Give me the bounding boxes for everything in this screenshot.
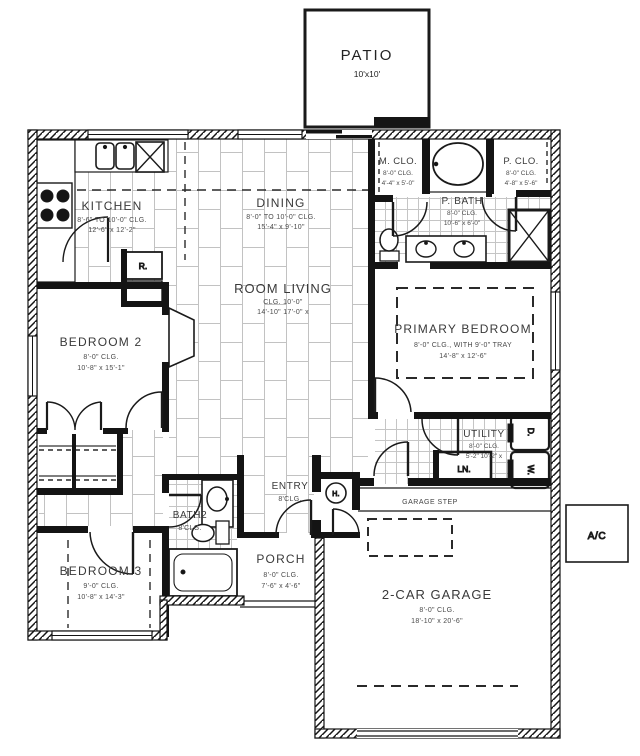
primary-label-group: PRIMARY BEDROOM 8'-0" CLG., WITH 9'-0" T… <box>394 322 532 360</box>
door-bedroom2 <box>126 392 162 428</box>
kitchen-size: 12'-6" x 12'-2" <box>88 227 136 234</box>
door-heater-closet <box>333 509 359 535</box>
patio: PATIO 10'x10' <box>305 10 430 127</box>
bath2-clg: 8'CLG. <box>178 525 201 532</box>
wall <box>237 455 244 538</box>
bath2-sink <box>207 487 227 511</box>
pbath-label-group: P. BATH 8'-0" CLG. 10'-6" x 6'-0" <box>441 196 482 227</box>
pbath-toilet <box>380 229 399 261</box>
entry-label: ENTRY <box>272 481 309 492</box>
bedroom2-size: 10'-8" x 15'-1" <box>77 365 125 372</box>
wall <box>117 432 123 495</box>
corridor-floor <box>334 419 368 478</box>
wall <box>37 488 123 495</box>
refrigerator-label: R. <box>139 261 148 271</box>
wall <box>237 532 279 538</box>
bedroom3-clg: 9'-0" CLG. <box>83 583 118 590</box>
toilet-tank <box>216 521 229 544</box>
utility-label: UTILITY <box>463 429 504 440</box>
wall <box>368 133 375 419</box>
ac-label: A/C <box>588 531 606 542</box>
wall <box>486 130 494 194</box>
porch-label: PORCH <box>256 552 305 566</box>
floor-plan-page: PATIO 10'x10' <box>0 0 640 756</box>
pbath-label: P. BATH <box>441 196 482 207</box>
kitchen-clg: 8'-6" TO 10'-0" CLG. <box>77 217 146 224</box>
toilet-bowl <box>380 229 398 251</box>
burner <box>41 209 53 221</box>
water-heater-label: H. <box>332 491 340 498</box>
pbath-size: 10'-6" x 6'-0" <box>444 220 481 227</box>
window-kitchen <box>88 130 188 139</box>
washer-hinge <box>508 460 513 478</box>
bedroom3-label: BEDROOM 3 <box>60 564 143 578</box>
refrigerator: R. <box>125 252 162 303</box>
burner <box>57 209 69 221</box>
entry-clg: 8'CLG. <box>278 496 301 503</box>
wall <box>372 412 378 419</box>
porch-size: 7'-6" x 4'-6" <box>261 583 300 590</box>
exterior-wall-right <box>551 130 560 738</box>
garage-attic-access <box>368 519 452 556</box>
wall <box>486 190 492 197</box>
wall <box>72 434 76 488</box>
water-heater: H. <box>326 483 346 503</box>
floor-plan-drawing: PATIO 10'x10' <box>0 0 640 756</box>
dryer-hinge <box>508 424 513 442</box>
wall <box>312 520 321 538</box>
dining-clg: 8'-0" TO 10'-0" CLG. <box>246 214 315 221</box>
pbath-clg: 8'-0" CLG. <box>447 210 477 217</box>
toilet-tank <box>380 251 399 261</box>
ac-pad: A/C <box>566 505 628 562</box>
pclo-label-group: P. CLO. 8'-0" CLG. 4'-8" x 5'-6" <box>503 156 538 187</box>
wall <box>430 262 556 269</box>
porch-clg: 8'-0" CLG. <box>263 572 298 579</box>
burner <box>57 190 69 202</box>
wall <box>312 455 321 492</box>
dining-size: 15'-4" x 9'-10" <box>257 224 305 231</box>
mclo-clg: 8'-0" CLG. <box>383 170 413 177</box>
garage-door-gap <box>357 729 518 738</box>
garage-step-label: GARAGE STEP <box>402 499 458 506</box>
exterior-wall-garage-left <box>315 538 324 738</box>
bedroom3-label-group: BEDROOM 3 9'-0" CLG. 10'-8" x 14'-3" <box>60 564 143 601</box>
wall <box>372 195 393 202</box>
faucet <box>226 498 229 501</box>
soaking-tub <box>429 136 487 192</box>
window-primary <box>551 292 560 370</box>
faucet <box>425 242 428 245</box>
burner <box>41 190 53 202</box>
porch-edge <box>240 601 324 607</box>
dining-label: DINING <box>256 196 305 210</box>
living-clg: CLG. 10'-0" <box>263 299 303 306</box>
wall <box>414 412 556 419</box>
pclo-clg: 8'-0" CLG. <box>506 170 536 177</box>
laundry-appliances: D. W. <box>508 416 549 488</box>
primary-clg: 8'-0" CLG., WITH 9'-0" TRAY <box>414 342 512 349</box>
living-label: ROOM LIVING <box>234 281 332 296</box>
exterior-wall-bath2-bottom <box>160 596 244 605</box>
utility-label-group: UTILITY 8'-0" CLG. 5'-2" 10'-2" x <box>463 429 504 460</box>
faucet <box>463 242 466 245</box>
door-primary <box>375 378 411 412</box>
wall <box>422 130 430 194</box>
wall <box>121 301 168 307</box>
garage-label: 2-CAR GARAGE <box>382 587 492 602</box>
faucet <box>103 145 106 148</box>
wall <box>28 282 169 289</box>
window-dining <box>238 130 302 139</box>
mclo-label-group: M. CLO. 8'-0" CLG. 4'-4" x 5'-0" <box>379 156 417 187</box>
mclo-size: 4'-4" x 5'-0" <box>382 180 415 187</box>
dryer-label: D. <box>526 428 536 437</box>
tub-bowl <box>433 143 483 185</box>
range <box>36 183 72 228</box>
wall <box>37 526 88 533</box>
bedroom2-label-group: BEDROOM 2 8'-0" CLG. 10'-8" x 15'-1" <box>60 335 143 372</box>
patio-wall-stub <box>374 117 430 127</box>
living-size: 14'-10" 17'-0" x <box>257 309 309 316</box>
wall <box>516 190 556 197</box>
washer-label: W. <box>526 465 536 475</box>
tub-faucet <box>434 162 438 166</box>
range-body <box>36 183 72 228</box>
window-bedroom3 <box>52 631 152 640</box>
pclo-label: P. CLO. <box>503 156 538 167</box>
wall <box>360 478 374 486</box>
pbath-vanity <box>406 236 486 262</box>
window-bedroom2 <box>28 336 37 396</box>
door-closet-double <box>47 402 101 430</box>
patio-size: 10'x10' <box>354 69 381 79</box>
faucet <box>123 145 126 148</box>
bedroom2-clg: 8'-0" CLG. <box>83 354 118 361</box>
dishwasher <box>136 142 164 172</box>
bath2-label: BATH2 <box>173 510 208 521</box>
bedroom3-size: 10'-8" x 14'-3" <box>77 594 125 601</box>
kitchen-label: KITCHEN <box>81 199 142 213</box>
mclo-label: M. CLO. <box>379 156 417 167</box>
wall <box>352 472 360 510</box>
pclo-size: 4'-8" x 5'-6" <box>505 180 538 187</box>
utility-size: 5'-2" 10'-2" x <box>466 453 503 460</box>
garage-label-group: 2-CAR GARAGE 8'-0" CLG. 18'-10" x 20'-6" <box>382 587 492 625</box>
patio-label: PATIO <box>341 47 394 64</box>
garage-size: 18'-10" x 20'-6" <box>411 618 463 625</box>
wall <box>162 474 169 493</box>
patio-slider-door <box>306 130 372 139</box>
bedroom2-label: BEDROOM 2 <box>60 335 143 349</box>
garage-clg: 8'-0" CLG. <box>419 607 454 614</box>
wall <box>408 478 556 486</box>
exterior-wall-step <box>160 600 167 640</box>
wall <box>37 428 47 434</box>
wall <box>169 474 239 480</box>
wall <box>103 428 128 434</box>
hall-floor <box>123 430 163 530</box>
hall-landing-floor <box>39 495 123 526</box>
utility-clg: 8'-0" CLG. <box>469 443 499 450</box>
bath2-tub <box>169 549 237 596</box>
primary-size: 14'-8" x 12'-6" <box>439 353 487 360</box>
wall <box>121 249 127 307</box>
porch-label-group: PORCH 8'-0" CLG. 7'-6" x 4'-6" <box>256 552 305 590</box>
wall <box>372 262 398 269</box>
linen-label: LN. <box>457 464 470 474</box>
primary-label: PRIMARY BEDROOM <box>394 322 532 336</box>
tub-drain <box>181 570 185 574</box>
wall <box>162 282 169 315</box>
